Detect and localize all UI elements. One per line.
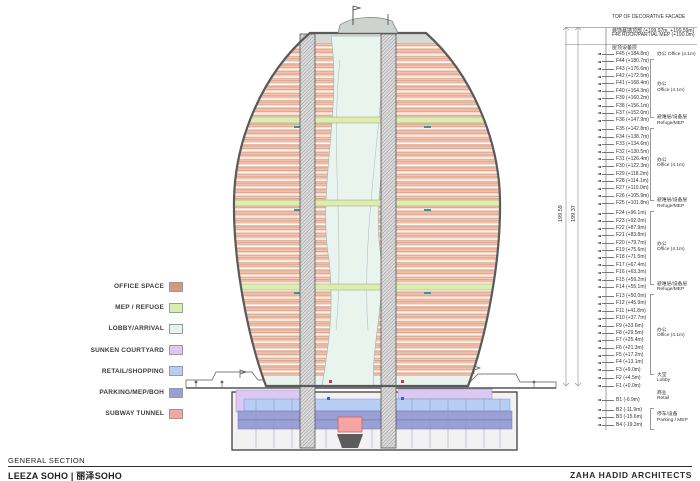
legend-item: LOBBY/ARRIVAL: [18, 318, 188, 339]
firm-name: ZAHA HADID ARCHITECTS: [570, 470, 692, 480]
legend-item-label: MEP / REFUGE: [18, 304, 164, 311]
drawing-title: GENERAL SECTION: [8, 456, 85, 465]
subway-tunnel: [338, 417, 362, 432]
legend-color-swatch: [169, 324, 183, 334]
legend-color-swatch: [169, 366, 183, 376]
parking-level-1: [238, 411, 512, 420]
legend-item-label: PARKING/MEP/BOH: [18, 389, 164, 396]
legend-color-swatch: [169, 345, 183, 355]
legend-color-swatch: [169, 388, 183, 398]
parking-level-2: [238, 420, 512, 429]
dimension-lines: [563, 28, 697, 431]
legend-item-label: LOBBY/ARRIVAL: [18, 325, 164, 332]
legend-item-label: SUBWAY TUNNEL: [18, 410, 164, 417]
legend: OFFICE SPACEMEP / REFUGELOBBY/ARRIVALSUN…: [18, 276, 188, 424]
legend-color-swatch: [169, 303, 183, 313]
legend-item: OFFICE SPACE: [18, 276, 188, 297]
legend-item-label: RETAIL/SHOPPING: [18, 368, 164, 375]
legend-item: PARKING/MEP/BOH: [18, 382, 188, 403]
legend-item-label: SUNKEN COURTYARD: [18, 347, 164, 354]
legend-item: SUBWAY TUNNEL: [18, 403, 188, 424]
retail-level: [244, 399, 510, 411]
legend-item: RETAIL/SHOPPING: [18, 361, 188, 382]
basement-structure: [232, 389, 517, 450]
legend-item: SUNKEN COURTYARD: [18, 340, 188, 361]
legend-item-label: OFFICE SPACE: [18, 283, 164, 290]
legend-color-swatch: [169, 409, 183, 419]
legend-item: MEP / REFUGE: [18, 297, 188, 318]
title-rule: [8, 466, 692, 467]
tower: [230, 6, 504, 448]
project-name: LEEZA SOHO | 丽泽SOHO: [8, 469, 122, 481]
drawing-sheet: OFFICE SPACEMEP / REFUGELOBBY/ARRIVALSUN…: [0, 0, 700, 481]
rooftop-antenna: [338, 6, 398, 33]
legend-color-swatch: [169, 282, 183, 292]
sunken-courtyard-right: [398, 389, 492, 399]
